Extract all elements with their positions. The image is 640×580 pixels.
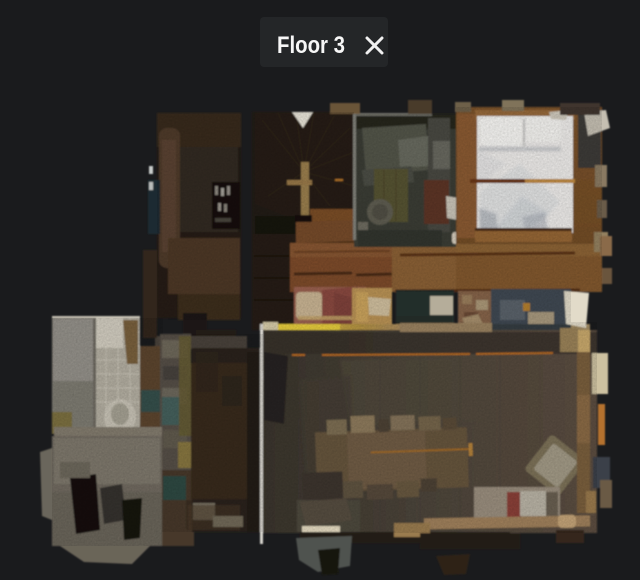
svg-text:Floor 3: Floor 3: [277, 32, 345, 59]
